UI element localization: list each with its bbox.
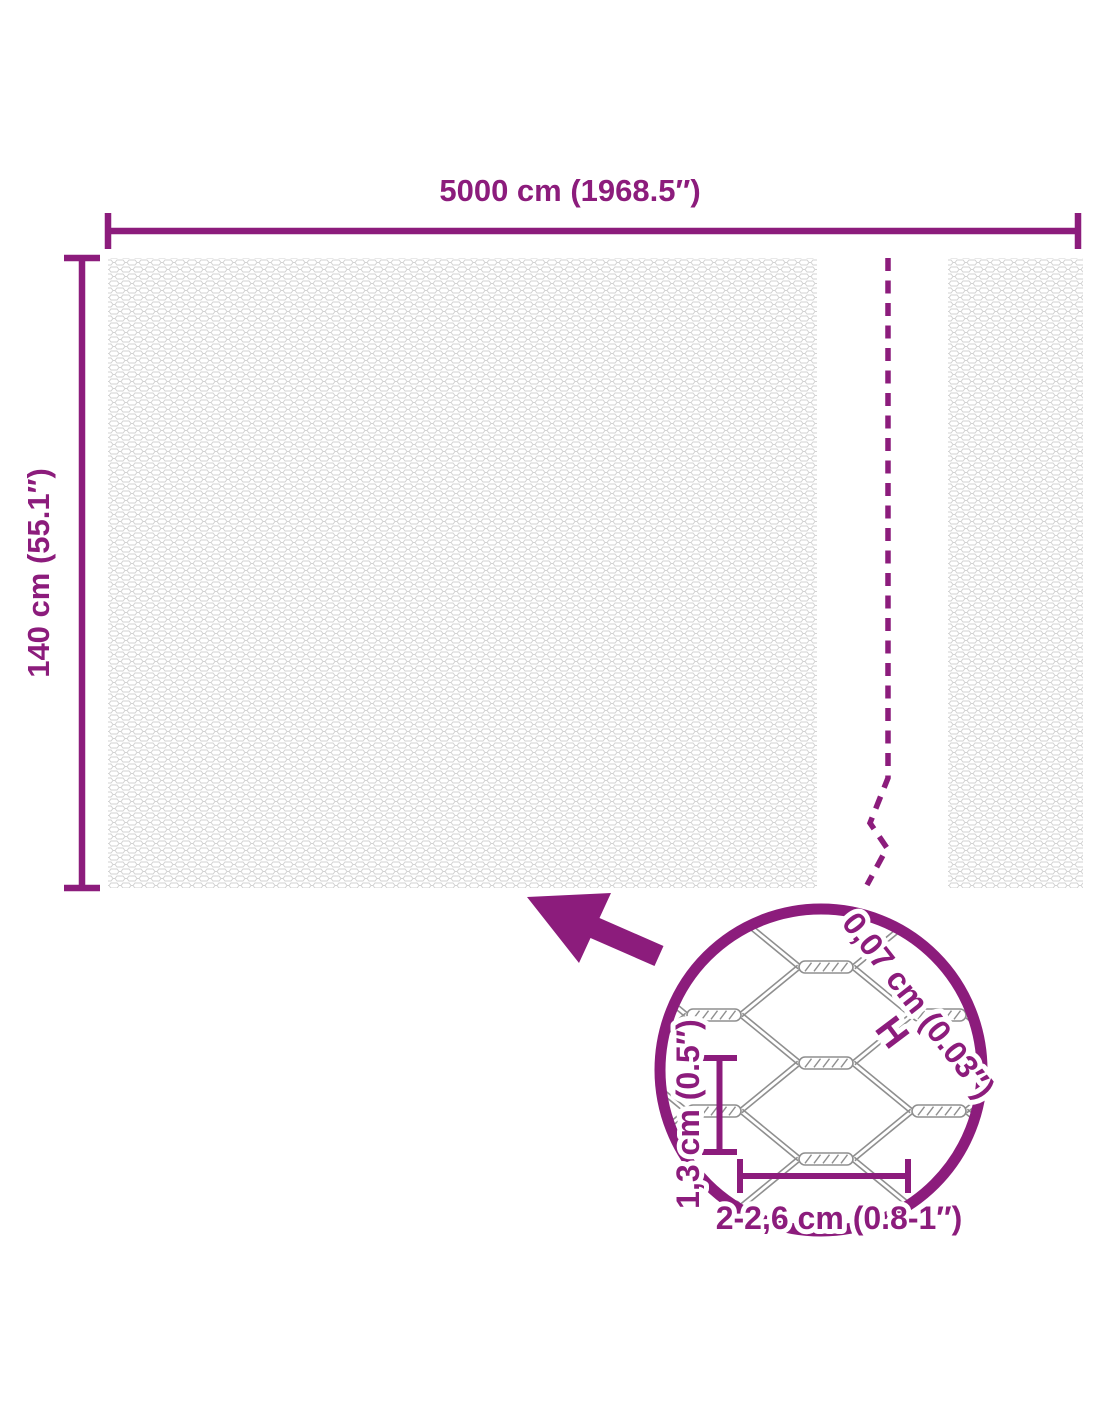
diagram-canvas: 5000 cm (1968.5″) 140 cm (55.1″) 0,07 cm… xyxy=(0,0,1100,1422)
height-dimension-line xyxy=(64,258,100,888)
mesh-height-label: 1,3 cm (0.5″) xyxy=(670,1019,706,1209)
width-dimension-line xyxy=(108,213,1078,249)
mesh-roll-front xyxy=(108,258,817,888)
mesh-width-label: 2-2,6 cm (0.8-1″) xyxy=(716,1200,963,1236)
roll-break-dashed-line xyxy=(867,258,888,885)
mesh-roll-end xyxy=(948,258,1083,888)
height-dimension-label: 140 cm (55.1″) xyxy=(21,468,56,678)
width-dimension-label: 5000 cm (1968.5″) xyxy=(439,173,700,208)
detail-magnifier-circle: 0,07 cm (0.03″) H 1,3 cm (0.5″) 2-2,6 cm… xyxy=(402,905,1100,1236)
product-dimension-diagram: 5000 cm (1968.5″) 140 cm (55.1″) 0,07 cm… xyxy=(0,0,1100,1422)
detail-pointer-arrow-icon xyxy=(527,893,664,966)
